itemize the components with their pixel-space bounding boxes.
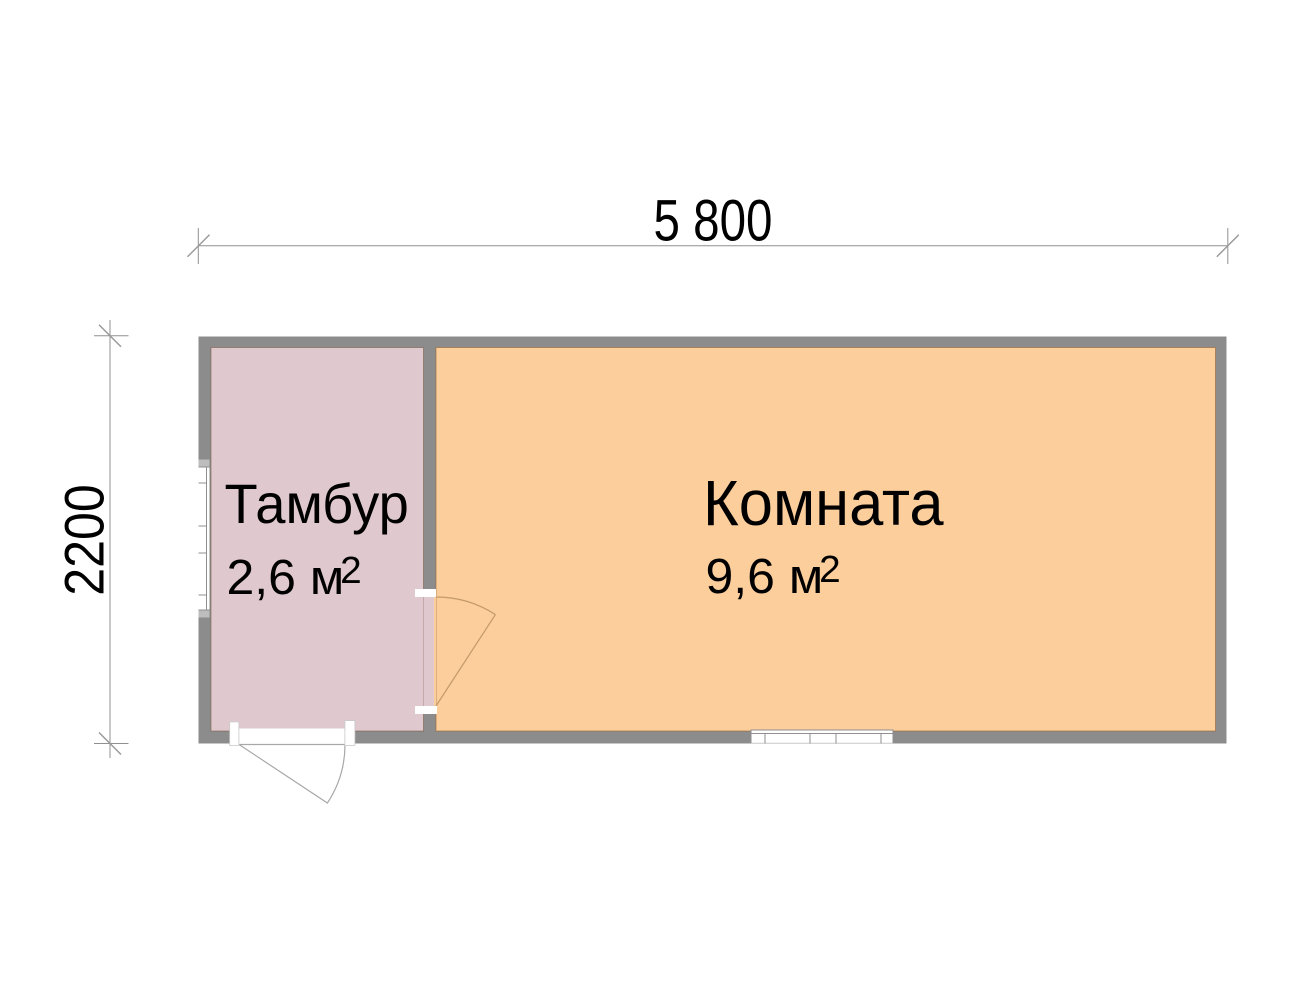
svg-text:Тамбур: Тамбур <box>225 472 409 535</box>
svg-text:5 800: 5 800 <box>654 189 773 254</box>
svg-text:Комната: Комната <box>703 468 944 539</box>
svg-text:2,6 м2: 2,6 м2 <box>227 549 362 605</box>
svg-text:2200: 2200 <box>54 484 116 595</box>
svg-text:9,6 м2: 9,6 м2 <box>706 548 841 604</box>
